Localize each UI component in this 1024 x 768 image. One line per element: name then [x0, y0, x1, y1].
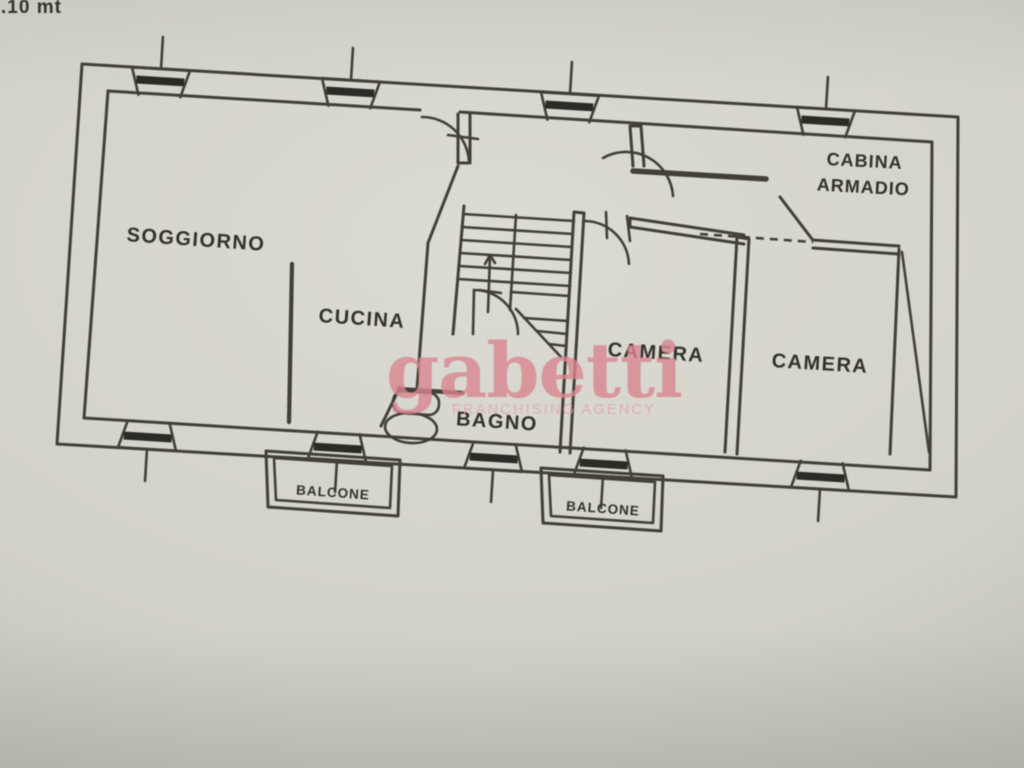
window-symbol	[320, 46, 381, 108]
window-symbol	[462, 441, 523, 503]
window-diagonal	[902, 252, 929, 452]
room-label-balcone-2: BALCONE	[566, 498, 641, 518]
door-leaf-cabina	[780, 197, 812, 239]
room-label-cabina-armadio: CABINA ARMADIO	[816, 149, 911, 200]
doors	[422, 117, 673, 334]
window-symbol	[795, 75, 856, 137]
wall-cabina-front	[633, 171, 766, 179]
svg-text:ARMADIO: ARMADIO	[816, 175, 910, 200]
window-symbol	[789, 460, 850, 522]
balcony-1	[266, 451, 400, 516]
watermark-tagline: FRANCHISING AGENCY	[452, 402, 656, 418]
svg-text:CABINA: CABINA	[826, 149, 903, 173]
scale-note: .10 mt	[1, 0, 62, 18]
window-symbol	[116, 420, 177, 482]
window-symbol	[130, 35, 191, 97]
floorplan-photo: .10 mt	[0, 0, 1024, 768]
room-label-balcone-1: BALCONE	[296, 482, 371, 502]
stair-arrow	[479, 255, 501, 312]
room-label-camera-2: CAMERA	[771, 350, 869, 378]
room-label-soggiorno: SOGGIORNO	[126, 224, 266, 256]
floorplan-drawing: .10 mt	[0, 0, 1024, 768]
door-arc-camera1	[585, 221, 629, 264]
window-symbol	[539, 60, 600, 122]
door-arc-entrance	[422, 117, 469, 161]
wall-soggiorno-cucina	[289, 264, 292, 422]
